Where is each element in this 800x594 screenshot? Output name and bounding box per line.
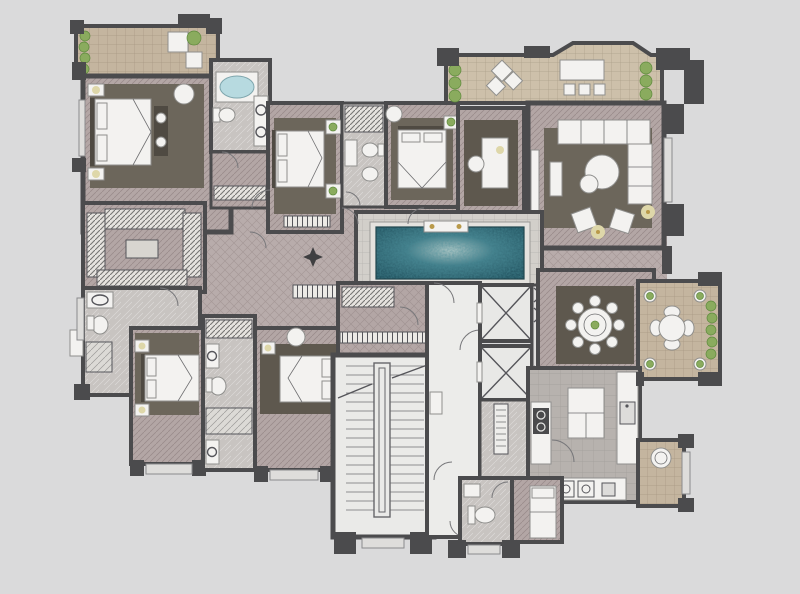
faucet-dot [625,404,628,407]
bay-window-pier [178,14,210,24]
outdoor-table [560,60,604,80]
sink-icon [464,484,480,497]
pantry-corridor [480,400,532,480]
pier [72,158,86,172]
pier [698,372,722,386]
laundry-balcony [638,434,694,512]
wardrobe [97,270,187,286]
wall-patch [662,246,672,274]
lamp-icon [92,86,100,94]
fitting-dot [430,224,435,229]
plant-icon [329,123,337,131]
pillow [532,488,554,498]
bedroom-5 [254,328,342,482]
wardrobe [214,186,266,200]
coat-closet [342,287,394,307]
utility-sink-icon [602,483,615,496]
walk-in-closet [83,203,205,292]
desk-chair-icon [468,156,484,172]
toilet-tank [87,316,94,330]
lamp-icon [496,146,504,154]
living-room [528,103,684,248]
plant-icon [187,31,201,45]
toilet-icon [219,108,235,122]
pillow [147,358,156,376]
pillow [322,381,331,399]
plant-icon [647,361,654,368]
dining-chair-icon [590,344,601,355]
pillow [97,103,107,129]
plant-icon [707,313,717,323]
elevator-door [477,362,482,382]
toilet-tank [206,378,212,392]
tv-console [284,216,330,227]
pool-water-texture [376,227,524,279]
pier [448,540,466,558]
lamp-icon [139,343,146,350]
plant-icon [447,118,455,126]
side-table [550,162,562,196]
study [458,108,524,212]
toilet-icon [475,507,495,523]
corner-pier [684,60,704,104]
pier [662,104,684,134]
closet-island [126,240,158,258]
pillow [97,135,107,161]
bedroom-4 [130,328,206,476]
stool-icon [156,137,166,147]
armchair-icon [287,328,305,346]
plant-icon [640,62,652,74]
floor-plan-canvas: residential apartment floor plan [0,0,800,594]
plant-icon [640,88,652,100]
pier [70,20,84,34]
lamp-dot [596,230,600,234]
dining-chair-icon [590,296,601,307]
lamp-icon [265,345,272,352]
plant-icon [647,293,654,300]
plant-icon [706,301,716,311]
bidet-icon [362,167,378,181]
swimming-pool [356,212,542,292]
elevator-door [477,303,482,323]
shared-bathroom [342,103,386,207]
dining-chair-icon [614,320,625,331]
service-closet [430,392,442,414]
plant-icon [697,361,704,368]
headboard [90,98,95,166]
pillow [278,134,287,156]
stairwell [333,355,434,554]
pier [678,434,694,448]
sofa-icon [628,144,652,204]
bedroom-3 [386,103,458,207]
stair-stringer [374,363,390,517]
foyer [338,283,427,357]
cooktop-icon [533,408,549,434]
fitting-dot [457,224,462,229]
plant-icon [697,293,704,300]
outdoor-stool [579,84,590,95]
dining-chair-icon [573,303,584,314]
plant-icon [706,325,716,335]
wardrobe [183,213,201,277]
window [682,452,690,494]
toilet-tank [468,506,475,524]
dining-chair-icon [607,337,618,348]
dining-chair-icon [607,303,618,314]
powder-room [448,478,520,558]
pillow [402,133,420,142]
lamp-icon [139,407,146,414]
double-vanity [254,96,268,146]
window-sill [468,545,500,554]
pier [678,498,694,512]
ac-grille [340,332,426,343]
wall-patch [636,372,644,386]
jack-and-jill-bathroom [203,316,255,470]
pier [334,532,356,554]
pier [662,204,684,236]
round-table-icon [651,448,671,468]
master-bathroom-with-tub [211,60,270,208]
pier [74,384,90,400]
maid-room [512,478,562,542]
window [79,100,85,156]
coffee-table-icon [580,175,598,193]
toilet-tank [378,144,384,156]
armchair-icon [174,84,194,104]
outdoor-stool [564,84,575,95]
wardrobe [105,209,185,229]
plant-icon [449,90,461,102]
lamp-icon [92,170,100,178]
lamp-dot [646,210,650,214]
plant-icon [79,42,89,52]
headboard [141,354,145,402]
plant-icon [80,53,90,63]
pier [524,46,550,58]
vanity [345,140,357,166]
pier [698,272,722,286]
plant-icon [706,349,716,359]
window [77,298,84,340]
bedroom-2 [268,103,342,232]
pillow [147,380,156,398]
plant-icon [707,337,717,347]
dining-chair-icon [566,320,577,331]
dining-chair-icon [573,337,584,348]
shower [206,408,252,434]
pantry-shelf [494,404,508,454]
headboard [272,130,276,188]
pier [72,62,86,80]
window [664,138,672,202]
pillow [424,133,442,142]
tv-cabinet [531,150,539,212]
pillow [322,359,331,377]
floor-plan-drawing: residential apartment floor plan [0,0,800,594]
planter-box [186,52,202,68]
linen-closet [206,320,252,338]
pillow [278,160,287,182]
shower [86,342,112,372]
pier [437,48,459,66]
terrace-table-icon [659,315,685,341]
dining-terrace [638,272,722,386]
window-sill [362,538,404,548]
pier [254,466,268,482]
bay-window-sill [146,464,192,474]
toilet-icon [362,143,378,157]
centerpiece-plant-icon [591,321,599,329]
bay-window-sill [270,470,318,480]
plant-icon [640,75,652,87]
armchair-icon [386,106,402,122]
planter-box [168,32,188,52]
wardrobe [87,213,105,277]
linen-closet [345,106,383,132]
pier [130,460,144,476]
headboard [398,126,446,130]
plant-icon [329,187,337,195]
plant-icon [449,77,461,89]
bathtub-icon [220,76,254,98]
outdoor-stool [594,84,605,95]
stool-icon [156,113,166,123]
desk-icon [482,138,508,188]
